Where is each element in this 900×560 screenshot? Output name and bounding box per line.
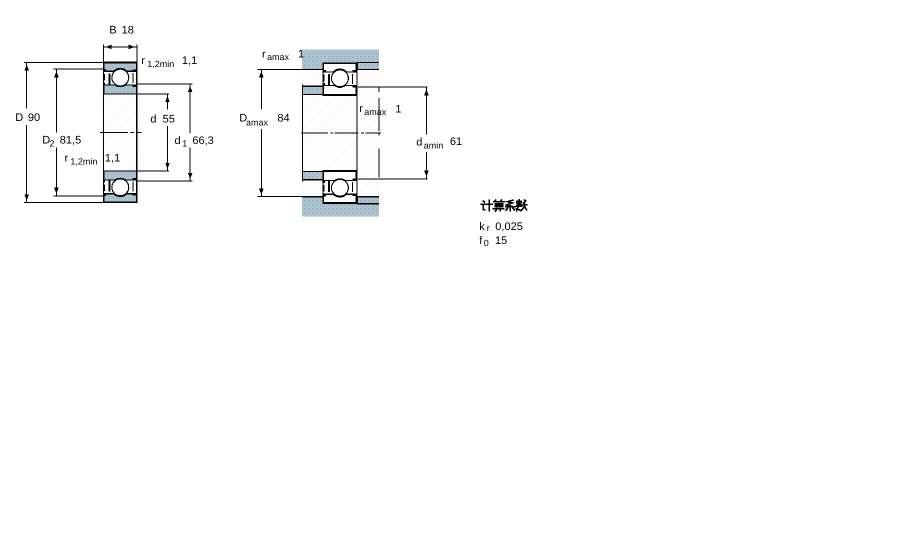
svg-text:amin: amin <box>424 140 444 150</box>
svg-text:r: r <box>487 223 490 233</box>
svg-text:1,2min: 1,2min <box>70 157 97 167</box>
svg-text:84: 84 <box>277 113 289 125</box>
svg-text:d: d <box>416 136 422 148</box>
svg-text:1: 1 <box>182 139 187 149</box>
svg-text:0,025: 0,025 <box>495 221 523 233</box>
svg-text:18: 18 <box>122 24 134 36</box>
svg-text:d: d <box>150 113 156 125</box>
svg-text:amax: amax <box>267 52 290 62</box>
svg-text:r: r <box>262 48 266 60</box>
svg-text:0: 0 <box>484 238 489 248</box>
svg-text:81,5: 81,5 <box>60 135 81 147</box>
svg-text:1,1: 1,1 <box>105 152 120 164</box>
svg-text:2: 2 <box>50 139 55 149</box>
svg-text:f: f <box>479 235 483 247</box>
svg-text:k: k <box>479 221 485 233</box>
svg-text:1: 1 <box>395 103 401 115</box>
svg-text:15: 15 <box>495 235 507 247</box>
svg-text:D: D <box>15 112 23 124</box>
svg-text:90: 90 <box>28 112 40 124</box>
svg-text:amax: amax <box>246 117 269 127</box>
svg-text:66,3: 66,3 <box>192 135 213 147</box>
svg-text:amax: amax <box>364 107 387 117</box>
svg-text:r: r <box>359 103 363 115</box>
svg-text:r: r <box>141 55 145 67</box>
svg-text:1,1: 1,1 <box>182 55 197 67</box>
svg-text:1,2min: 1,2min <box>147 59 174 69</box>
svg-text:1: 1 <box>298 49 304 61</box>
svg-text:d: d <box>175 135 181 147</box>
svg-text:55: 55 <box>163 113 175 125</box>
svg-text:61: 61 <box>450 136 462 148</box>
svg-text:r: r <box>65 153 69 165</box>
svg-text:B: B <box>109 24 116 36</box>
